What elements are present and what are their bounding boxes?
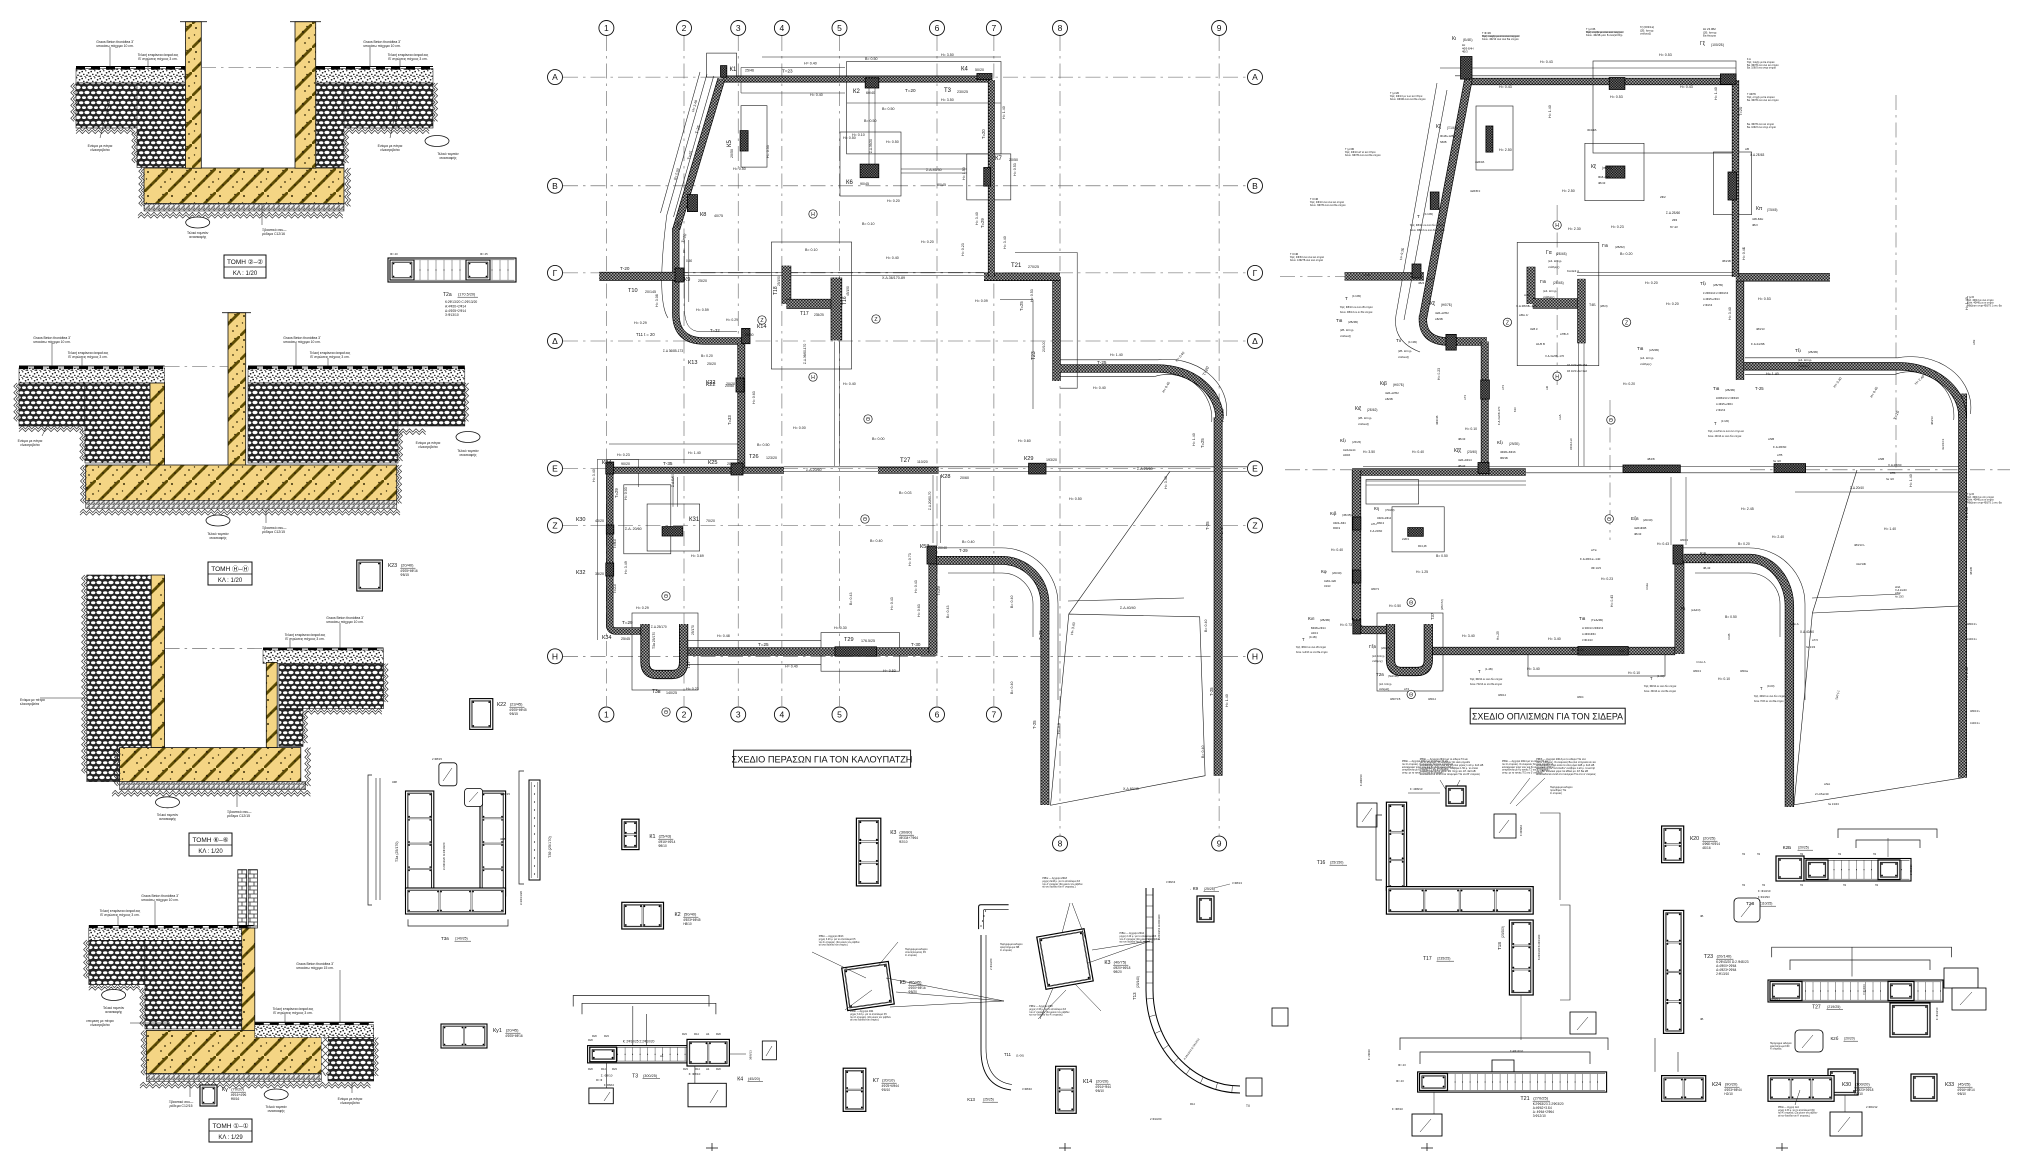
svg-text:Н= 1.40: Н= 1.40 [1002,106,1006,119]
svg-text:483/13 L: 483/13 L [1967,622,1978,626]
svg-text:В= 0.50: В= 0.50 [757,443,770,447]
svg-text:(219/25): (219/25) [1827,1005,1840,1009]
svg-text:Х.Δ.3Ξ/6Б–170: Х.Δ.3Ξ/6Б–170 [1545,354,1564,358]
svg-text:(2Б/4Б): (2Б/4Б) [1556,252,1567,256]
svg-text:ανασκαφής: ανασκαφής [268,1109,285,1113]
svg-text:140/25: 140/25 [666,691,677,695]
svg-text:44Б-Б4Н: 44Б-Б4Н [1752,217,1763,221]
svg-text:Н= 0.73: Н= 0.73 [1340,623,1352,627]
svg-text:483/13 L: 483/13 L [1854,543,1865,547]
svg-text:ππ/ια: ππ/ια [1618,649,1625,653]
svg-text:Тιв: Тιв [1637,346,1644,351]
svg-text:Κανκ. Ф8/13 σε αν Βα στηρία: Κανκ. Ф8/13 σε αν Βα στηρία [1340,311,1373,314]
svg-text:ΞБ/4Б: ΞБ/4Б [1385,397,1393,401]
svg-text:(2Б/3): (2Б/3) [1600,304,1608,308]
svg-text:Σ.Δ.Б/60: Σ.Δ.Б/60 [671,474,675,487]
svg-text:3 Ф8/13: 3 Ф8/13 [1232,881,1242,885]
svg-text:Κανκ. 4Ф/13 σε ανα δύο στηρία: Κανκ. 4Ф/13 σε ανα δύο στηρία [1708,435,1742,438]
svg-text:Ф14: Ф14 [601,1067,606,1071]
svg-text:3Ф13-1Ξ0: 3Ф13-1Ξ0 [1569,438,1573,450]
svg-text:Σ: Ф8/10: Σ: Ф8/10 [601,1074,613,1078]
svg-text:ρόδεμα C12/15: ρόδεμα C12/15 [227,814,250,818]
svg-text:К13: К13 [967,1097,975,1102]
svg-text:В= 0.03: В= 0.03 [899,491,912,495]
svg-text:№ 13/43: № 13/43 [1828,802,1839,806]
svg-text:Ф23: Ф23 [682,1032,687,1036]
svg-text:(25/25): (25/25) [983,1098,994,1102]
svg-text:Ю Ч/2: Ю Ч/2 [1670,225,1678,229]
svg-text:Т10: Т10 [628,288,638,294]
svg-text:ανασκαφής: ανασκαφής [439,156,456,160]
svg-text:Н= 0.60: Н= 0.60 [1018,439,1031,443]
svg-text:Т=25: Т=25 [1019,301,1024,311]
svg-text:Σ.Δ 36/85-173: Σ.Δ 36/85-173 [663,349,683,353]
svg-text:αtί τον δασίδια του Αʹ στορεία: αtί τον δασίδια του Αʹ στορείας.) [1778,1114,1810,1117]
svg-text:В= 0.10: В= 0.10 [805,248,818,252]
svg-text:(Ξ4. Ιαπηρ.: (Ξ4. Ιαπηρ. [1548,259,1562,263]
svg-text:Н= 0.53: Н= 0.53 [1610,95,1623,99]
svg-text:4Б/43: 4Б/43 [1458,464,1466,468]
svg-text:Όρξ. Ф8/10 σε ανα δύο στηρία: Όρξ. Ф8/10 σε ανα δύο στηρία [1409,224,1444,227]
svg-text:Ф20: Ф20 [588,1067,593,1071]
svg-text:Α: Α [1252,72,1258,82]
svg-text:4Б/16: 4Б/16 [1702,846,1711,850]
svg-text:Т26: Т26 [749,454,759,460]
svg-text:στάθμης): στάθμης) [1798,364,1809,368]
svg-text:Ба θεωρια: Ба θεωρια [1703,34,1716,38]
svg-text:Όρξ. Ф8/10 σε ανα δύο στηρία: Όρξ. Ф8/10 σε ανα δύο στηρία [1469,678,1503,681]
svg-text:Κανκ. 4Ф/13 ανα ανα Ба στηρία: Κανκ. 4Ф/13 ανα ανα Ба στηρία [1482,37,1519,41]
svg-text:Т11 t = 20: Т11 t = 20 [636,332,655,337]
svg-text:(2Б/4Б): (2Б/4Б) [1725,388,1735,392]
svg-text:В= 0.50: В= 0.50 [1725,615,1737,619]
svg-text:5: 5 [837,710,842,720]
svg-text:4Б: 4Б [1700,914,1704,918]
svg-text:Ф8/16: Ф8/16 [231,1097,240,1101]
svg-text:(20/20): (20/20) [1096,1079,1109,1084]
svg-text:Н= 1.40: Н= 1.40 [688,451,701,455]
svg-text:2: 2 [682,710,687,720]
svg-text:(100/20): (100/20) [1855,1082,1871,1087]
svg-text:№ 13/3: № 13/3 [1806,645,1816,649]
svg-text:Θ: Θ [863,517,867,523]
svg-text:В= 0.43: В= 0.43 [946,606,950,619]
svg-text:ΣΧΕΔΙΟ ΟΠΛΙΣΜΩΝ ΓΙΑ ΤΟΝ ΣΙΔΕΡΑ: ΣΧΕΔΙΟ ΟΠΛΙΣΜΩΝ ΓΙΑ ΤΟΝ ΣΙΔΕΡΑ [1472,712,1623,722]
svg-text:Т23: Т23 [1704,954,1713,960]
svg-text:Н= 0.29: Н= 0.29 [726,318,738,322]
svg-text:483/13: 483/13 [1693,669,1701,673]
svg-text:40/75: 40/75 [714,214,723,218]
svg-text:Т18: Т18 [1497,942,1502,950]
svg-text:Н= 3.40: Н= 3.40 [1548,637,1561,641]
svg-text:Βʹ στρώσεις πάχους 3 cm.: Βʹ στρώσεις πάχους 3 cm. [273,1011,312,1015]
svg-text:Ζ: Ζ [1252,521,1257,531]
svg-text:Т3а 25/170: Т3а 25/170 [652,632,656,649]
svg-text:Т: Т [1650,676,1653,681]
svg-text:4Б,43: 4Б,43 [1703,566,1711,570]
svg-text:Н= 0.10: Н= 0.10 [852,133,865,137]
svg-text:Н= 1.25: Н= 1.25 [1416,570,1428,574]
svg-text:Т16: Т16 [1317,860,1326,866]
svg-text:ΞΤ4: ΞΤ4 [1404,687,1410,691]
svg-text:Н= 0.09: Н= 0.09 [975,299,988,303]
svg-text:К4: К4 [737,1077,743,1083]
svg-text:ΤΟΜΗ Ⓗ–Ⓗ: ΤΟΜΗ Ⓗ–Ⓗ [211,565,249,573]
svg-text:Ζ: Ζ [552,521,557,531]
svg-text:Κανκ. Ф8/13 σε ανα δύο στηρία: Κανκ. Ф8/13 σε ανα δύο στηρία [1410,229,1445,232]
svg-text:Х.Δ.36/170-89: Х.Δ.36/170-89 [882,276,905,280]
svg-text:Κανκ. 3Ф/13 σε στα Ва στηρία: Κανκ. 3Ф/13 σε στα Ва στηρία [1644,690,1677,693]
svg-text:Н= 0.40: Н= 0.40 [785,665,798,669]
svg-text:Н= 3.40: Н= 3.40 [1728,307,1732,320]
svg-text:235/25: 235/25 [814,313,824,317]
svg-text:Н= 0.43: Н= 0.43 [1499,85,1512,89]
svg-text:Θ: Θ [1609,418,1613,424]
svg-text:Н= 0.60: Н= 0.60 [1221,409,1225,422]
svg-text:К29: К29 [1024,456,1033,462]
svg-text:(2Б/4Б): (2Б/4Б) [1553,281,1564,285]
svg-text:ανασκαφής: ανασκαφής [209,536,226,540]
svg-text:40/20: 40/20 [595,519,604,523]
svg-text:Θ: Θ [664,594,668,600]
svg-text:Н= 1.40: Н= 1.40 [1965,667,1969,680]
svg-text:Κανκ. 4Ф/4Б μλα: Б ανα(Ξ0 Б)ρ: Κανκ. 4Ф/4Б μλα: Б ανα(Ξ0 Б)ρ [1586,33,1623,37]
svg-text:Кιβ: Кιβ [1330,511,1337,516]
svg-text:Б13: Б13 [1513,407,1517,412]
svg-text:στάθμης): στάθμης) [1372,659,1383,663]
svg-text:Ф8/10: Ф8/10 [658,844,667,848]
svg-text:123/20: 123/20 [766,456,777,460]
svg-text:Т39 (25/170): Т39 (25/170) [548,836,552,858]
svg-text:7: 7 [992,710,997,720]
svg-text:Н= 0.40: Н= 0.40 [810,93,823,97]
svg-text:(270/25): (270/25) [1533,1096,1549,1101]
svg-text:№ 13/3: № 13/3 [1895,594,1904,598]
svg-text:(20/25): (20/25) [1798,846,1809,850]
svg-text:Όρξ. 4Ф/43 σε ανα στηρία: Όρξ. 4Ф/43 σε ανα στηρία [1966,299,1994,302]
svg-text:ΞΤВ: ΞΤВ [1777,453,1783,457]
svg-text:45/150: 45/150 [846,286,850,296]
svg-text:В= 0.40: В= 0.40 [1010,682,1014,695]
svg-text:Ф8/1Б: Ф8/1Б [1500,456,1508,460]
svg-text:Т-25: Т-25 [1205,521,1210,530]
svg-text:4ΞБ1Ф4В: 4ΞБ1Ф4В [1634,526,1646,530]
svg-text:Σ.Δ.20/40: Σ.Δ.20/40 [1850,486,1864,490]
svg-text:Т-20: Т-20 [620,266,630,271]
svg-text:К7: К7 [995,156,1002,162]
svg-text:Ξ83: Ξ83 [1972,339,1976,345]
svg-text:Т-29: Т-29 [959,548,968,553]
svg-text:υποκάτω πάχρμα 10 cm.: υποκάτω πάχρμα 10 cm. [283,340,321,344]
svg-text:Н= 0.53: Н= 0.53 [1659,53,1672,57]
svg-text:2 Ф13/20: 2 Ф13/20 [989,958,993,970]
svg-text:(20/10): (20/10) [882,1078,895,1083]
svg-text:Όρξ. Ф8/10 σε ανα αΒ στηρία: Όρξ. Ф8/10 σε ανα αΒ στηρία [1339,306,1373,309]
svg-text:Гα: Гα [1546,250,1552,256]
svg-text:υποκάτω πάχρμα 10 cm.: υποκάτω πάχρμα 10 cm. [326,620,364,624]
svg-text:К23: К23 [388,563,397,569]
svg-text:Т21: Т21 [1520,1096,1529,1102]
svg-text:αtί στα δασίδια του στηρία.): αtί στα δασίδια του στηρία.) [819,944,848,947]
svg-text:Σ Ф13/93: Σ Ф13/93 [1758,895,1770,899]
svg-text:(1=2Б): (1=2Б) [1424,212,1433,216]
svg-text:К14: К14 [757,324,766,330]
svg-text:Н8/10: Н8/10 [683,922,692,926]
svg-text:Н1/Б В: Н1/Б В [1536,342,1545,346]
svg-text:Ку1: Ку1 [493,1028,502,1034]
svg-text:Ба. 3Ф/7Б ανα ανα Ξα στηρία: Ба. 3Ф/7Б ανα ανα Ξα στηρία [1747,99,1779,102]
svg-text:Н= 2.45: Н= 2.45 [1741,507,1754,511]
svg-text:Н2/10: Н2/10 [1854,1092,1863,1096]
svg-text:4ΞБ/В К: 4ΞБ/В К [1470,189,1481,193]
svg-text:μηχος 2.33 μ. για το αποτέλεμα: μηχος 2.33 μ. για το αποτέλεμα Κ30 [1778,1109,1815,1112]
svg-text:Т=33: Т=33 [727,415,732,425]
svg-text:Н= 0.4Б: Н= 0.4Б [1742,246,1746,260]
svg-text:А:4Ф31Ф64: А:4Ф31Ф64 [1582,632,1596,636]
svg-text:4Б/3: 4Б/3 [1462,50,1468,54]
svg-text:Н4: Н4 [706,1032,710,1036]
svg-text:ΞΒ: ΞΒ [1745,147,1749,151]
svg-text:2: 2 [682,23,687,33]
svg-text:Ф9/19: Ф9/19 [1333,526,1341,530]
svg-text:БФ2Б+2Ф14: БФ2Б+2Ф14 [1311,626,1326,630]
svg-text:К3: К3 [890,830,896,836]
svg-text:(70/20): (70/20) [231,1087,244,1092]
svg-text:Ζ: Ζ [874,317,877,323]
svg-text:(2Б/7Б): (2Б/7Б) [1713,283,1723,287]
svg-text:Т=25: Т=25 [1038,630,1043,640]
svg-text:ατιδοιαξ): ατιδοιαξ) [1340,334,1351,338]
svg-text:(0-00): (0-00) [1767,684,1775,688]
svg-text:Σ: Ф8/10: Σ: Ф8/10 [689,1072,701,1076]
svg-text:Н= 2.40: Н= 2.40 [1772,535,1784,539]
svg-text:Н= 1.40: Н= 1.40 [1909,474,1913,487]
svg-text:Н 300/13 23Ф3/13: Н 300/13 23Ф3/13 [1582,626,1604,630]
svg-text:Σ.Δ.35/20: Σ.Δ.35/20 [869,139,873,153]
svg-text:Н= 3.40: Н= 3.40 [1462,634,1475,638]
svg-text:(ιπ/4Б): (ιπ/4Б) [1602,166,1612,170]
svg-text:υποκάτω πάχρμα 10 cm.: υποκάτω πάχρμα 10 cm. [96,44,134,48]
svg-text:ΚΛ : 1/20: ΚΛ : 1/20 [233,271,258,277]
svg-text:К3: К3 [1104,960,1110,966]
svg-text:Ф20: Ф20 [588,1038,593,1042]
svg-text:(140/25): (140/25) [455,937,468,941]
svg-text:Т28: Т28 [1746,901,1755,907]
svg-text:Ф8/10: Ф8/10 [1095,1089,1104,1093]
svg-text:2:Ф13/10: 2:Ф13/10 [1716,972,1729,976]
svg-text:Н= 0.59: Н= 0.59 [696,308,709,312]
svg-text:Ф= 43: Ф= 43 [1396,1079,1404,1083]
svg-text:Ф8/20: Ф8/20 [908,990,917,994]
svg-text:(55/45): (55/45) [909,980,922,985]
svg-text:20/145: 20/145 [645,290,656,294]
svg-text:Ф= 40: Ф= 40 [390,252,398,256]
svg-text:(100/2Б): (100/2Б) [1711,43,1724,47]
svg-text:В= 0.20: В= 0.20 [1572,648,1584,652]
svg-text:Х.Δ.3Б/6Б–170: Х.Δ.3Б/6Б–170 [1516,304,1537,308]
svg-text:Κανκ. 4Ф/4Б ανα ανα Ба στηρία: Κανκ. 4Ф/4Б ανα ανα Ба στηρία [1390,98,1426,101]
svg-text:Ф14: Ф14 [694,1032,699,1036]
svg-text:ΞΝВ: ΞΝВ [1878,457,1884,461]
svg-text:Х.Δ.2Б/60: Х.Δ.2Б/60 [1888,463,1902,467]
svg-text:3:Ф12/10: 3:Ф12/10 [1533,1114,1546,1118]
svg-text:Т: Т [1760,686,1763,691]
svg-text:Ф23: Ф23 [612,1067,617,1071]
svg-text:3ΞВ К: 3ΞВ К [1530,327,1538,331]
svg-text:Н= 0.20: Н= 0.20 [1645,281,1658,285]
svg-text:ατιδοιαξ): ατιδοιαξ) [1398,355,1409,359]
svg-text:ΚΛ : 1/29: ΚΛ : 1/29 [218,1135,243,1141]
svg-text:Н= 0.40: Н= 0.40 [804,62,817,66]
svg-text:Σ.4Ф8/10: Σ.4Ф8/10 [1359,774,1363,786]
svg-text:ΤΟΜΗ ⑥–⑥: ΤΟΜΗ ⑥–⑥ [192,836,228,844]
svg-text:Т37: Т37 [686,661,691,669]
svg-text:К9: К9 [1193,886,1199,892]
svg-text:К33: К33 [1945,1082,1954,1088]
svg-text:Т=29: Т=29 [622,620,633,625]
svg-text:К14: К14 [1083,1079,1092,1085]
svg-text:(23/203): (23/203) [1501,926,1505,938]
svg-text:К30: К30 [576,517,585,523]
svg-text:4Ф8: 4Ф8 [392,780,397,784]
svg-text:4Б: 4Б [1700,1017,1704,1021]
svg-text:(29/2Б): (29/2Б) [1509,442,1519,446]
svg-text:20/20: 20/20 [727,462,736,466]
svg-text:25/20: 25/20 [698,279,707,283]
svg-text:αtί στα δασίδια του στηρία.): αtί στα δασίδια του στηρία.) [850,1019,879,1022]
svg-text:Т27: Т27 [1812,1005,1821,1011]
svg-text:К: 2Ф10/25 Σ:2Ф10/20: К: 2Ф10/25 Σ:2Ф10/20 [623,1040,655,1044]
svg-text:К:2Ф13/13 Ω:2Ф13/20: К:2Ф13/13 Ω:2Ф13/20 [1157,914,1161,940]
svg-text:№ Ч/2: № Ч/2 [1773,459,1781,463]
svg-text:Н= 0.48: Н= 0.48 [717,634,730,638]
svg-text:ΞΞА: ΞΞА [1558,414,1562,420]
svg-text:К1: К1 [730,67,737,73]
svg-text:Н= 2.50: Н= 2.50 [1562,189,1575,193]
svg-text:ανασκαφής: ανασκαφής [459,453,476,457]
svg-text:№ Ч/2: № Ч/2 [1886,477,1894,481]
svg-text:Н= 1.40: Н= 1.40 [1225,694,1229,707]
svg-text:Н= 0.10: Н= 0.10 [1465,427,1477,431]
svg-text:(170.5/20): (170.5/20) [458,293,476,297]
svg-text:К28: К28 [941,474,950,480]
svg-text:4ΞБ+Н7Б2: 4ΞБ+Н7Б2 [1385,391,1399,395]
svg-text:4ΞБ1-4ΞБ: 4ΞБ1-4ΞБ [1324,579,1336,583]
svg-text:Н= 0.63: Н= 0.63 [917,604,921,617]
svg-text:ΞΤВ: ΞΤВ [1890,471,1896,475]
svg-text:Кξ: Кξ [1436,124,1442,130]
svg-text:ατιδοιαξ): ατιδοιαξ) [1358,422,1369,426]
svg-text:Σ.Δ.25/60: Σ.Δ.25/60 [1137,467,1153,471]
svg-text:ΡΙΒΙα — Αγχρηί 1Ξ4: ΡΙΒΙα — Αγχρηί 1Ξ4 [1778,1106,1799,1109]
svg-text:Н= 0.10: Н= 0.10 [1718,677,1730,681]
svg-text:К25: К25 [708,460,717,466]
svg-text:Н0/1Б: Н0/1Б [1343,453,1350,457]
svg-text:Т-25: Т-25 [1209,687,1214,696]
svg-text:Кιξ: Кιξ [1355,406,1362,412]
svg-text:Н= 1.50: Н= 1.50 [962,167,966,180]
svg-text:Н= 0.40: Н= 0.40 [1331,548,1343,552]
svg-text:Θ: Θ [866,417,870,423]
svg-text:Ф13,48: Ф13,48 [1418,544,1427,548]
svg-text:ΚΞ4Ξ3 А: ΚΞ4Ξ3 А [1567,269,1579,273]
svg-text:Θ: Θ [1607,517,1611,523]
svg-text:ατιδ/μαξ): ατιδ/μαξ) [1379,687,1389,691]
svg-text:В= 0.43: В= 0.43 [849,593,853,606]
svg-text:ΚΛ : 1/20: ΚΛ : 1/20 [218,578,243,584]
svg-text:(1-00): (1-00) [1016,1054,1024,1058]
svg-text:80/45: 80/45 [937,183,946,187]
svg-text:ρόδεμα C12/15: ρόδεμα C12/15 [169,1104,192,1108]
svg-text:Ζ: Ζ [1625,320,1628,326]
svg-text:Κανκ. Н0/13 σε στα Ва στηρία: Κανκ. Н0/13 σε στα Ва στηρία [1470,683,1503,686]
svg-text:(20/40): (20/40) [1643,518,1653,522]
svg-text:В= 0.20: В= 0.20 [1738,542,1750,546]
svg-text:(ΝΔ/4Б): (ΝΔ/4Б) [1388,674,1399,678]
svg-text:ελαιοτριβείτα: ελαιοτριβείτα [380,148,399,152]
svg-text:412/13К: 412/13К [1856,562,1867,566]
svg-text:К2: К2 [853,89,860,95]
svg-text:Αʹ στορείας: Αʹ στορείας [905,954,918,957]
svg-text:Β: Β [552,181,558,191]
svg-text:4Б/3: 4Б/3 [1752,223,1758,227]
svg-text:(Ξ1/4Б): (Ξ1/4Б) [1447,126,1458,130]
svg-text:К2б: К2б [1831,1036,1839,1041]
svg-text:К4: К4 [961,67,968,73]
svg-text:Н=-0.9: Н=-0.9 [1057,723,1061,734]
svg-text:Δ:4Ф25+2Ф14: Δ:4Ф25+2Ф14 [445,309,466,313]
svg-text:Η: Η [1555,223,1559,229]
svg-text:В= 0.40: В= 0.40 [1010,596,1014,609]
svg-text:Т-25: Т-25 [1032,720,1037,729]
svg-text:Н= 0.23: Н= 0.23 [617,453,630,457]
svg-text:2ΞВ К: 2ΞВ К [1402,537,1410,541]
svg-text:Γ: Γ [1253,268,1258,278]
svg-text:Т=20: Т=20 [1738,106,1743,116]
svg-text:(45/25): (45/25) [1958,1082,1971,1087]
svg-text:Н= 2.30: Н= 2.30 [1568,227,1581,231]
svg-text:Н= 0.03: Н= 0.03 [624,487,628,500]
svg-text:Κανκ. Н0/3 σε στα Ва στηρία: Κανκ. Н0/3 σε στα Ва στηρία [1754,700,1784,703]
svg-text:Н= 0.29: Н= 0.29 [636,606,649,610]
svg-text:Η: Η [811,212,815,218]
svg-text:ΡιΒιβσαπ ιωνφι 4Ф3/73 1 σπω Ба: ΡιΒιβσαπ ιωνφι 4Ф3/73 1 σπω Ба [1967,501,2002,504]
svg-text:(Ξ5/2Б): (Ξ5/2Б) [1649,348,1659,352]
svg-text:(25/150): (25/150) [1330,861,1343,865]
svg-text:Н= 0.29: Н= 0.29 [634,321,647,325]
svg-text:483/14: 483/14 [1428,697,1436,701]
svg-text:Н= 1.40: Н= 1.40 [1965,507,1969,520]
svg-text:(300/25): (300/25) [643,1074,658,1078]
svg-text:(Ξ4. Ιαπηρ.: (Ξ4. Ιαπηρ. [1543,289,1557,293]
svg-text:Σ: Ф13/10: Σ: Ф13/10 [1758,889,1771,893]
svg-text:В= 0.10: В= 0.10 [862,222,875,226]
svg-text:Σ.Δ.45/30: Σ.Δ.45/30 [926,168,942,172]
svg-text:Ф8/15: Ф8/15 [509,712,518,716]
svg-text:К:2Ф13/20 Ω:2Ф10/20: К:2Ф13/20 Ω:2Ф10/20 [442,842,446,870]
svg-text:Кφ: Кφ [1321,569,1327,574]
svg-text:ΞΞΞ А: ΞΞΞ А [1790,622,1799,626]
svg-text:Η: Η [1555,374,1559,380]
svg-text:Ф18+3Ф4: Ф18+3Ф4 [1598,175,1611,179]
svg-text:(x5/x5): (x5/x5) [1352,440,1361,444]
svg-text:2 Ф3/13: 2 Ф3/13 [1703,303,1713,307]
svg-text:ανασκαφής: ανασκαφής [159,817,176,821]
svg-text:(2Б. Ιαπηρ.: (2Б. Ιαπηρ. [1358,416,1372,420]
svg-text:Ε: Ε [552,464,558,474]
svg-text:Н4: Н4 [706,1067,710,1071]
svg-text:Тιв: Тιв [1579,616,1586,621]
